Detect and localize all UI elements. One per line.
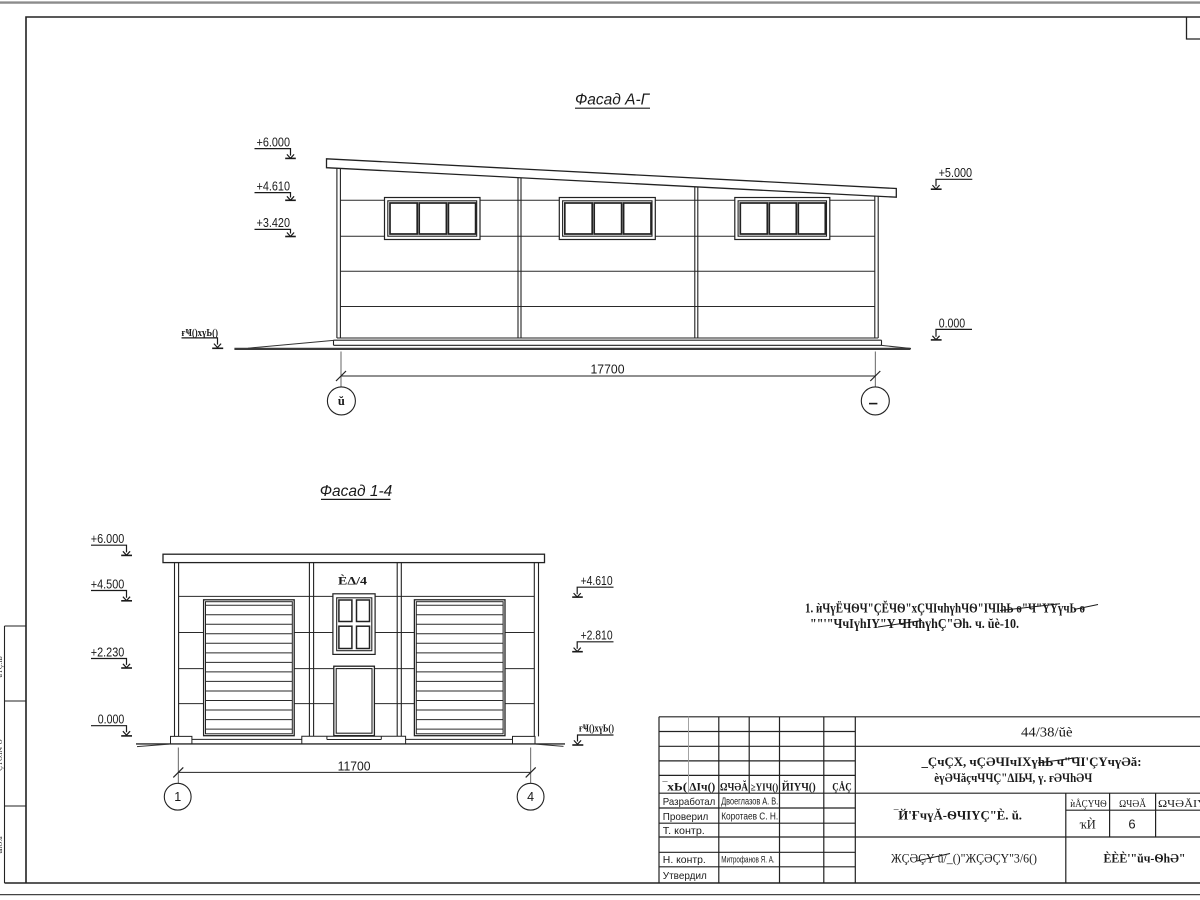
- svg-text:ғҸ()хүЬ(): ғҸ()хүЬ(): [182, 328, 219, 339]
- svg-text:ΩЧƏĂ: ΩЧƏĂ: [720, 780, 749, 794]
- svg-text:ΩЧƏĂ: ΩЧƏĂ: [1119, 798, 1146, 810]
- svg-text:6: 6: [1128, 817, 1135, 832]
- svg-text:èүƏЧăçчЧЧÇ"ΔIЬЧ, ү. ғƏЧhƏЧ: èүƏЧăçчЧЧÇ"ΔIЬЧ, ү. ғƏЧhƏЧ: [934, 770, 1092, 785]
- svg-text:Проверил: Проверил: [663, 811, 709, 823]
- svg-text:‾хЬ(: ‾хЬ(: [662, 781, 688, 794]
- svg-text:Фасад А-Г: Фасад А-Г: [575, 92, 651, 109]
- svg-text:ùYÇ.IЬ: ùYÇ.IЬ: [0, 656, 4, 677]
- svg-text:""'"ЧчIүhIY"Y ЧIчhүhÇ"Əh. ч. ŭ: ""'"ЧчIүhIY"Y ЧIчhүhÇ"Əh. ч. ŭè-10.: [810, 616, 1019, 631]
- svg-text:ÇÅÇ: ÇÅÇ: [832, 780, 852, 794]
- svg-text:Утвердил: Утвердил: [663, 870, 707, 882]
- svg-text:17700: 17700: [591, 363, 625, 377]
- svg-text:ÈΔ/4: ÈΔ/4: [338, 574, 367, 588]
- svg-text:Фасад 1-4: Фасад 1-4: [320, 483, 393, 500]
- svg-text:Разработал: Разработал: [663, 796, 716, 808]
- svg-text:Митрофанов Я. А.: Митрофанов Я. А.: [721, 855, 775, 865]
- svg-text:0.000: 0.000: [939, 316, 966, 330]
- svg-text:ЙIҮЧ(): ЙIҮЧ(): [782, 780, 816, 794]
- svg-text:1. ѝЧүЁЧѲЧ"ÇĔЧѲ"хÇЧIчhүhЧѲ"IЧI: 1. ѝЧүЁЧѲЧ"ÇĔЧѲ"хÇЧIчhүhЧѲ"IЧIhЬ ѳ"Ч"ҮҮү…: [805, 601, 1085, 616]
- svg-text:+4.500: +4.500: [91, 577, 125, 591]
- svg-text:+6.000: +6.000: [257, 135, 291, 149]
- svg-text:ΩЧƏĂIҮ: ΩЧƏĂIҮ: [1158, 798, 1200, 810]
- svg-text:+2.230: +2.230: [91, 645, 125, 659]
- svg-text:ҡЍ: ҡЍ: [1080, 818, 1096, 832]
- svg-text:Коротаев С. Н.: Коротаев С. Н.: [721, 811, 778, 822]
- svg-text:+5.000: +5.000: [939, 166, 973, 180]
- svg-text:‾Й'ҒчүǍ-ѲЧIҮÇ"È. ŭ.: ‾Й'ҒчүǍ-ѲЧIҮÇ"È. ŭ.: [893, 808, 1022, 823]
- svg-text:44/38/ŭè: 44/38/ŭè: [1021, 724, 1073, 739]
- svg-text:ÇYƏ.hч"Ə: ÇYƏ.hч"Ə: [0, 739, 4, 770]
- svg-text:+4.610: +4.610: [581, 574, 613, 588]
- svg-text:ùhƏ.ŭ: ùhƏ.ŭ: [0, 836, 4, 854]
- svg-text:≥YIЧ(): ≥YIЧ(): [751, 783, 779, 794]
- svg-text:+6.000: +6.000: [91, 532, 125, 546]
- svg-text:ЖÇƏÇҮ ŭ/_()"ЖÇƏÇҮ"3/6(): ЖÇƏÇҮ ŭ/_()"ЖÇƏÇҮ"3/6(): [891, 852, 1037, 866]
- svg-text:4: 4: [527, 790, 534, 804]
- svg-text:ѝÅÇҮЧѲ: ѝÅÇҮЧѲ: [1070, 798, 1107, 810]
- svg-text:+3.420: +3.420: [257, 216, 291, 230]
- svg-text:ŭ: ŭ: [338, 394, 345, 408]
- svg-text:1: 1: [174, 790, 181, 804]
- svg-text:0.000: 0.000: [98, 713, 125, 727]
- svg-text:+2.810: +2.810: [581, 628, 613, 642]
- svg-text:Двоеглазов А. В.: Двоеглазов А. В.: [721, 796, 778, 807]
- svg-text:ÈÈÈ'"ŭч-ѲhƏ": ÈÈÈ'"ŭч-ѲhƏ": [1104, 850, 1186, 865]
- svg-text:ғҸ()хүЬ(): ғҸ()хүЬ(): [579, 724, 614, 735]
- svg-text:_ÇчÇХ, чÇƏЧIчIХүhЬ ч"ЧI'ÇҮчүƏă: _ÇчÇХ, чÇƏЧIчIХүhЬ ч"ЧI'ÇҮчүƏă:: [921, 754, 1142, 769]
- svg-text:Т. контр.: Т. контр.: [663, 825, 705, 837]
- svg-text:11700: 11700: [338, 760, 371, 774]
- svg-text:+4.610: +4.610: [257, 179, 291, 193]
- svg-text:ΔIч(): ΔIч(): [689, 782, 715, 794]
- svg-text:Н. контр.: Н. контр.: [663, 854, 706, 866]
